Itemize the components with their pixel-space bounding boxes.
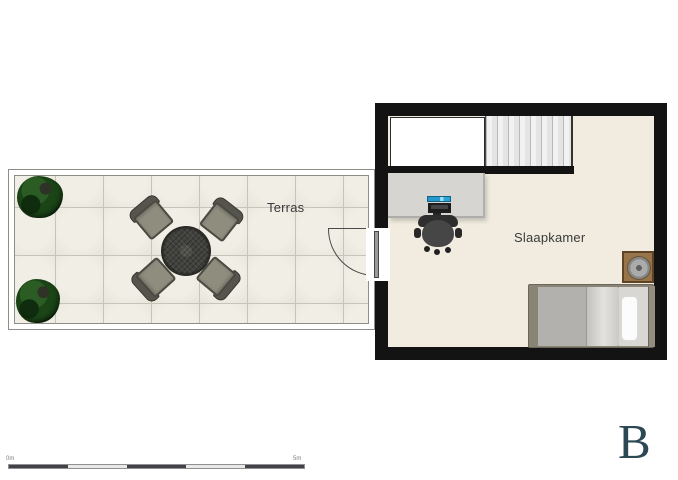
keyboard-icon — [428, 203, 451, 213]
room-label-slaapkamer: Slaapkamer — [514, 230, 585, 245]
single-bed-icon — [528, 284, 654, 348]
office-chair-seat — [422, 220, 454, 247]
scale-segment — [245, 465, 304, 468]
nightstand-icon — [622, 251, 654, 283]
scale-segment — [9, 465, 68, 468]
chair-caster — [424, 246, 430, 252]
office-chair-armrest — [414, 228, 421, 238]
folded-duvet — [586, 287, 620, 346]
scale-bar-segments — [8, 464, 305, 469]
scale-start-label: 0m — [6, 456, 14, 462]
scale-segment — [68, 465, 127, 468]
table-lamp-icon — [627, 256, 651, 280]
plant-icon — [17, 176, 63, 218]
room-terras: Terras — [8, 169, 375, 330]
scale-segment — [186, 465, 245, 468]
plant-icon — [16, 279, 60, 323]
headboard — [648, 286, 655, 347]
terrace-tile-floor: Terras — [14, 175, 369, 324]
chair-caster — [445, 247, 451, 253]
office-chair-icon — [414, 215, 462, 253]
staircase-icon — [485, 116, 573, 168]
pillow-icon — [621, 296, 638, 341]
floorplan-canvas: Terras Slaapkamer 0m 5m B — [0, 0, 678, 480]
stair-void — [390, 117, 485, 167]
computer-monitor-icon — [427, 196, 451, 202]
keyboard-keys — [431, 205, 448, 209]
room-label-terras: Terras — [267, 200, 304, 215]
door-leaf-icon — [374, 231, 379, 278]
brand-logo-letter: B — [618, 416, 651, 468]
chair-caster — [434, 249, 440, 255]
scale-end-label: 5m — [293, 456, 301, 462]
office-chair-armrest — [455, 228, 462, 238]
scale-segment — [127, 465, 186, 468]
